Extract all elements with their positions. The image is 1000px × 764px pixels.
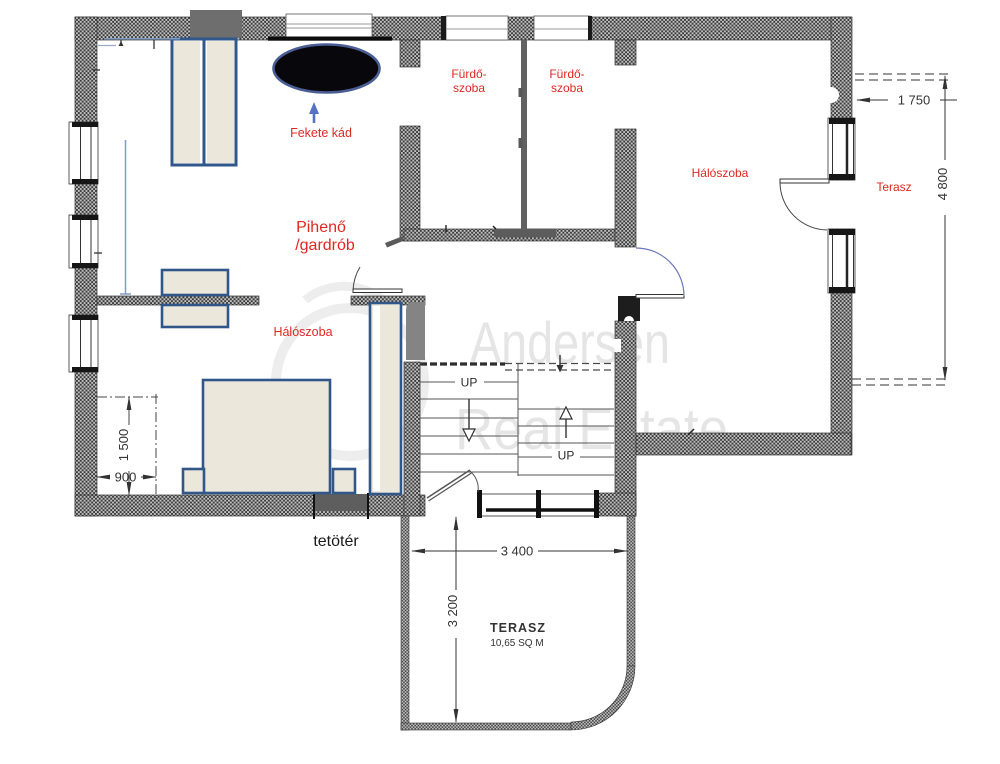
svg-text:UP: UP: [461, 376, 478, 390]
svg-text:Hálószoba: Hálószoba: [692, 166, 749, 180]
svg-text:Terasz: Terasz: [876, 180, 911, 194]
svg-text:Fürdő-: Fürdő-: [549, 67, 584, 81]
svg-text:Fürdő-: Fürdő-: [451, 67, 486, 81]
svg-text:Fekete kád: Fekete kád: [290, 126, 352, 140]
svg-text:szoba: szoba: [453, 81, 485, 95]
svg-text:1 750: 1 750: [898, 93, 931, 108]
svg-text:TERASZ: TERASZ: [490, 621, 546, 635]
svg-text:Hálószoba: Hálószoba: [273, 325, 332, 339]
svg-text:/gardrób: /gardrób: [295, 237, 355, 254]
svg-text:900: 900: [115, 470, 137, 485]
svg-text:3 200: 3 200: [445, 595, 460, 628]
svg-text:UP: UP: [558, 449, 575, 463]
svg-text:szoba: szoba: [551, 81, 583, 95]
svg-text:10,65 SQ M: 10,65 SQ M: [490, 638, 543, 649]
svg-text:3 400: 3 400: [501, 544, 534, 559]
svg-text:1 500: 1 500: [116, 429, 131, 462]
svg-text:4 800: 4 800: [935, 168, 950, 201]
svg-text:tetötér: tetötér: [313, 533, 359, 550]
svg-text:Pihenő: Pihenő: [296, 219, 346, 236]
